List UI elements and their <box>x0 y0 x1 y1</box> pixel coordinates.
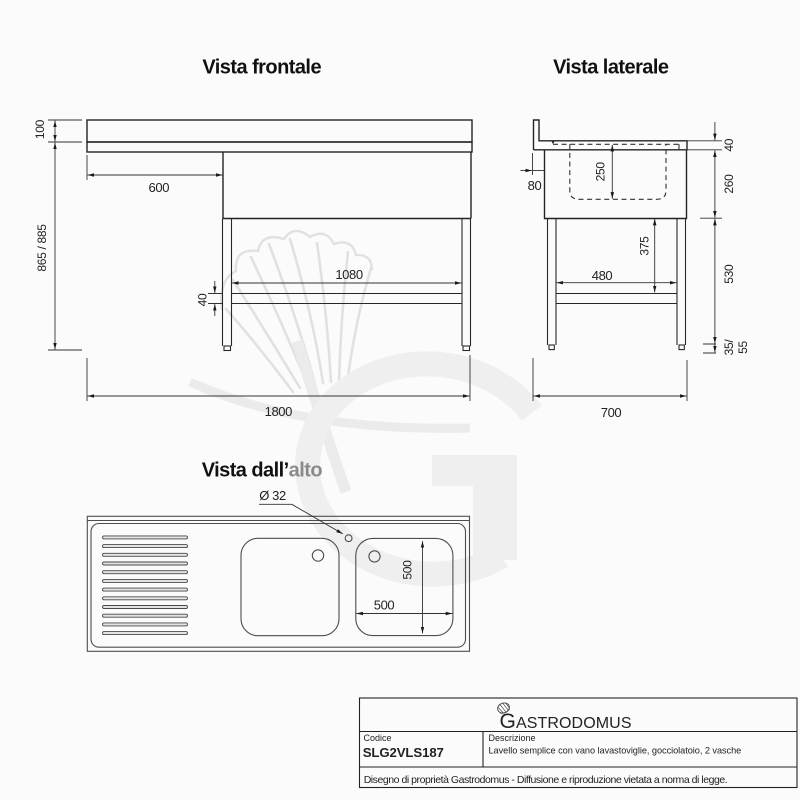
svg-text:Codice: Codice <box>364 733 392 743</box>
svg-text:Vista dall’alto: Vista dall’alto <box>202 459 323 481</box>
svg-text:530: 530 <box>722 264 736 284</box>
svg-text:Ø 32: Ø 32 <box>259 488 286 503</box>
svg-text:Lavello semplice con vano lava: Lavello semplice con vano lavastoviglie,… <box>489 746 742 756</box>
svg-text:375: 375 <box>637 236 651 256</box>
svg-text:1800: 1800 <box>265 404 292 419</box>
svg-text:GASTRODOMUS: GASTRODOMUS <box>500 710 632 733</box>
svg-text:35/: 35/ <box>722 339 736 356</box>
svg-text:Vista frontale: Vista frontale <box>202 57 321 79</box>
svg-text:40: 40 <box>195 293 209 306</box>
svg-text:40: 40 <box>722 138 736 151</box>
svg-text:SLG2VLS187: SLG2VLS187 <box>363 745 444 760</box>
svg-text:100: 100 <box>33 119 47 139</box>
svg-text:260: 260 <box>722 174 736 194</box>
svg-text:500: 500 <box>374 597 395 612</box>
svg-text:Disegno di proprietà Gastrodom: Disegno di proprietà Gastrodomus - Diffu… <box>364 774 728 786</box>
svg-text:600: 600 <box>149 180 170 195</box>
svg-text:250: 250 <box>593 162 607 182</box>
svg-text:1080: 1080 <box>335 267 362 282</box>
svg-text:700: 700 <box>601 405 622 420</box>
svg-text:500: 500 <box>400 560 414 580</box>
svg-text:480: 480 <box>592 268 613 283</box>
svg-text:55: 55 <box>736 341 750 354</box>
svg-text:80: 80 <box>528 178 542 193</box>
svg-text:Descrizione: Descrizione <box>489 733 536 743</box>
svg-text:Vista laterale: Vista laterale <box>553 57 669 79</box>
svg-text:865 / 885: 865 / 885 <box>35 224 49 272</box>
